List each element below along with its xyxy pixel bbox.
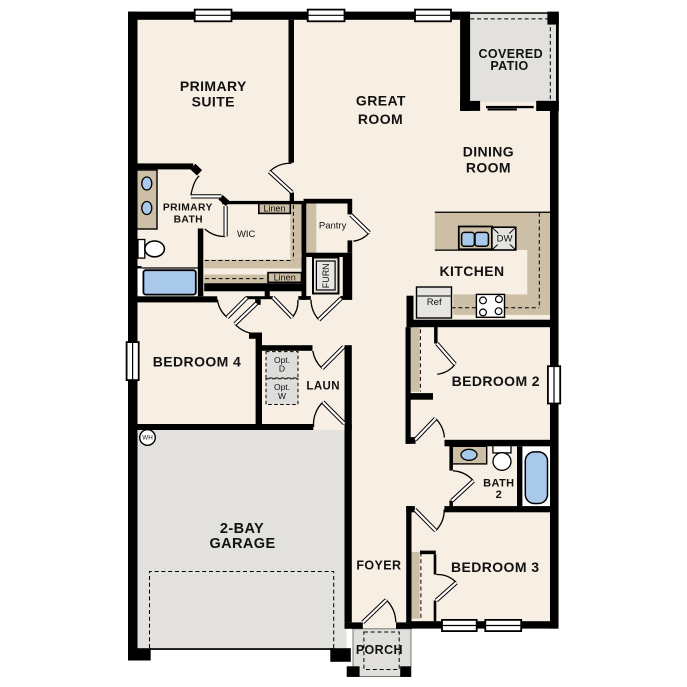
svg-text:PATIO: PATIO — [490, 59, 528, 73]
svg-text:PRIMARY: PRIMARY — [180, 78, 247, 94]
svg-text:WIC: WIC — [237, 229, 256, 240]
svg-text:WH: WH — [142, 434, 153, 441]
svg-text:BEDROOM 3: BEDROOM 3 — [451, 559, 539, 575]
svg-text:BATH: BATH — [483, 478, 514, 490]
svg-text:FOYER: FOYER — [356, 559, 401, 573]
svg-text:Ref: Ref — [427, 297, 442, 308]
svg-text:W: W — [278, 391, 286, 401]
svg-text:ROOM: ROOM — [358, 111, 403, 127]
svg-text:DINING: DINING — [463, 144, 514, 160]
svg-text:PORCH: PORCH — [356, 643, 403, 657]
svg-text:BATH: BATH — [174, 214, 203, 225]
svg-text:GARAGE: GARAGE — [209, 536, 275, 552]
svg-text:Linen: Linen — [263, 204, 285, 214]
svg-text:D: D — [279, 364, 285, 374]
svg-text:PRIMARY: PRIMARY — [163, 202, 213, 213]
svg-text:FURN: FURN — [321, 263, 331, 288]
svg-text:DW: DW — [497, 234, 513, 245]
svg-text:KITCHEN: KITCHEN — [439, 263, 504, 279]
svg-text:GREAT: GREAT — [356, 93, 406, 109]
svg-text:ROOM: ROOM — [466, 160, 511, 176]
svg-text:SUITE: SUITE — [192, 94, 235, 110]
svg-text:BEDROOM 4: BEDROOM 4 — [153, 353, 241, 369]
svg-text:LAUN: LAUN — [306, 380, 340, 392]
svg-text:Linen: Linen — [274, 273, 296, 283]
svg-text:BEDROOM 2: BEDROOM 2 — [452, 373, 540, 389]
svg-text:Pantry: Pantry — [319, 221, 347, 232]
svg-text:2-BAY: 2-BAY — [220, 521, 264, 537]
svg-text:2: 2 — [496, 489, 503, 501]
